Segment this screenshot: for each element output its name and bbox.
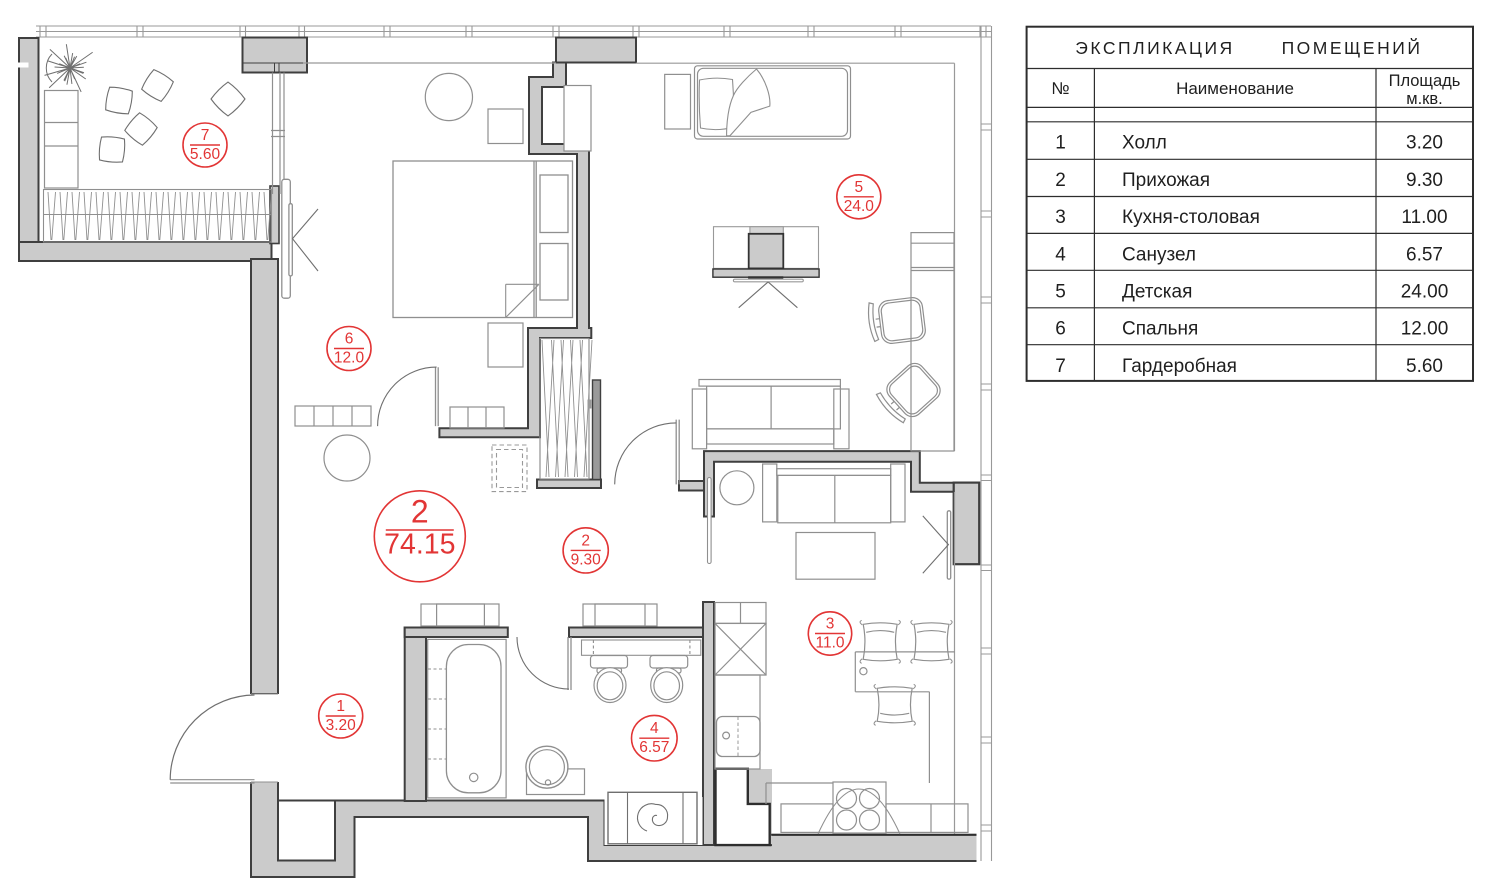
svg-text:5: 5 [1055, 282, 1066, 303]
svg-text:2: 2 [1055, 170, 1066, 191]
svg-text:7: 7 [1055, 356, 1066, 377]
svg-text:3.20: 3.20 [1406, 133, 1443, 154]
svg-text:Холл: Холл [1122, 133, 1167, 154]
svg-text:11.0: 11.0 [815, 635, 844, 652]
svg-text:1: 1 [336, 698, 345, 715]
svg-text:4: 4 [1055, 244, 1066, 265]
svg-text:4: 4 [650, 720, 659, 737]
svg-text:6: 6 [1055, 319, 1066, 340]
svg-text:12.00: 12.00 [1401, 319, 1449, 340]
svg-text:Санузел: Санузел [1122, 244, 1196, 265]
svg-text:Спальня: Спальня [1122, 319, 1198, 340]
svg-text:5.60: 5.60 [190, 146, 221, 163]
svg-text:2: 2 [581, 532, 590, 549]
svg-text:ЭКСПЛИКАЦИЯ: ЭКСПЛИКАЦИЯ [1075, 38, 1234, 58]
svg-text:3.20: 3.20 [326, 717, 357, 734]
svg-text:№: № [1051, 79, 1069, 98]
svg-text:12.0: 12.0 [334, 350, 365, 367]
svg-text:6: 6 [345, 331, 354, 348]
svg-text:1: 1 [1055, 133, 1066, 154]
svg-text:9.30: 9.30 [1406, 170, 1443, 191]
svg-text:Гардеробная: Гардеробная [1122, 356, 1237, 377]
svg-text:Кухня-столовая: Кухня-столовая [1122, 207, 1260, 228]
svg-text:Наименование: Наименование [1176, 79, 1294, 98]
svg-text:5: 5 [854, 179, 863, 196]
svg-text:6.57: 6.57 [639, 739, 669, 756]
svg-text:7: 7 [201, 127, 210, 144]
svg-text:2: 2 [411, 493, 429, 529]
svg-text:Детская: Детская [1122, 282, 1192, 303]
svg-text:9.30: 9.30 [571, 551, 602, 568]
svg-text:3: 3 [826, 616, 835, 633]
svg-text:24.0: 24.0 [844, 198, 875, 215]
svg-text:74.15: 74.15 [384, 529, 455, 561]
svg-text:Площадь: Площадь [1389, 72, 1461, 90]
svg-text:ПОМЕЩЕНИЙ: ПОМЕЩЕНИЙ [1282, 37, 1423, 58]
svg-text:3: 3 [1055, 207, 1066, 228]
svg-text:11.00: 11.00 [1401, 207, 1447, 228]
svg-text:5.60: 5.60 [1406, 356, 1443, 377]
svg-text:м.кв.: м.кв. [1406, 90, 1443, 108]
svg-text:6.57: 6.57 [1406, 244, 1443, 265]
svg-text:24.00: 24.00 [1401, 282, 1449, 303]
svg-text:Прихожая: Прихожая [1122, 170, 1210, 191]
